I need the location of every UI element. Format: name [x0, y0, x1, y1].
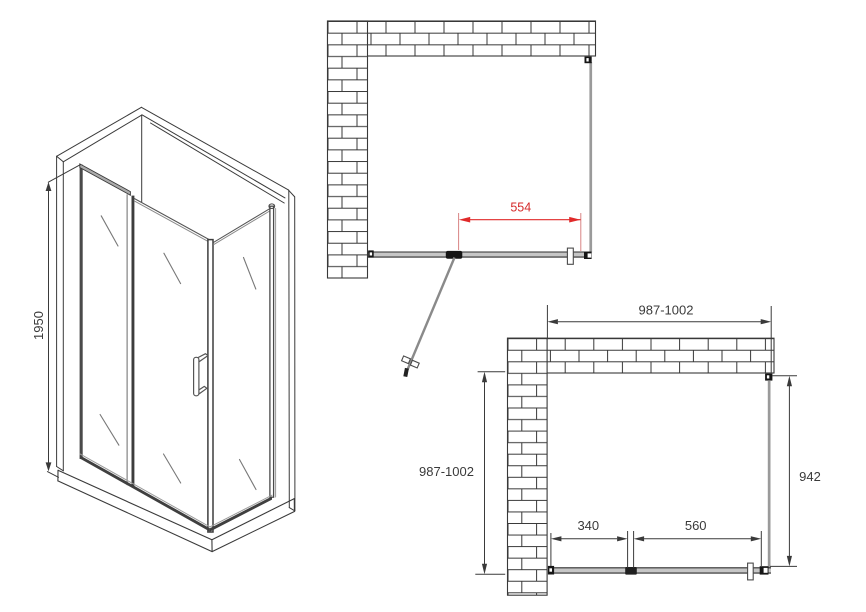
svg-text:987-1002: 987-1002 — [419, 464, 474, 479]
svg-text:554: 554 — [510, 201, 531, 215]
svg-text:1950: 1950 — [31, 311, 46, 340]
svg-text:942: 942 — [799, 469, 821, 484]
svg-text:340: 340 — [577, 518, 599, 533]
svg-text:560: 560 — [685, 518, 707, 533]
svg-text:987-1002: 987-1002 — [639, 303, 694, 318]
